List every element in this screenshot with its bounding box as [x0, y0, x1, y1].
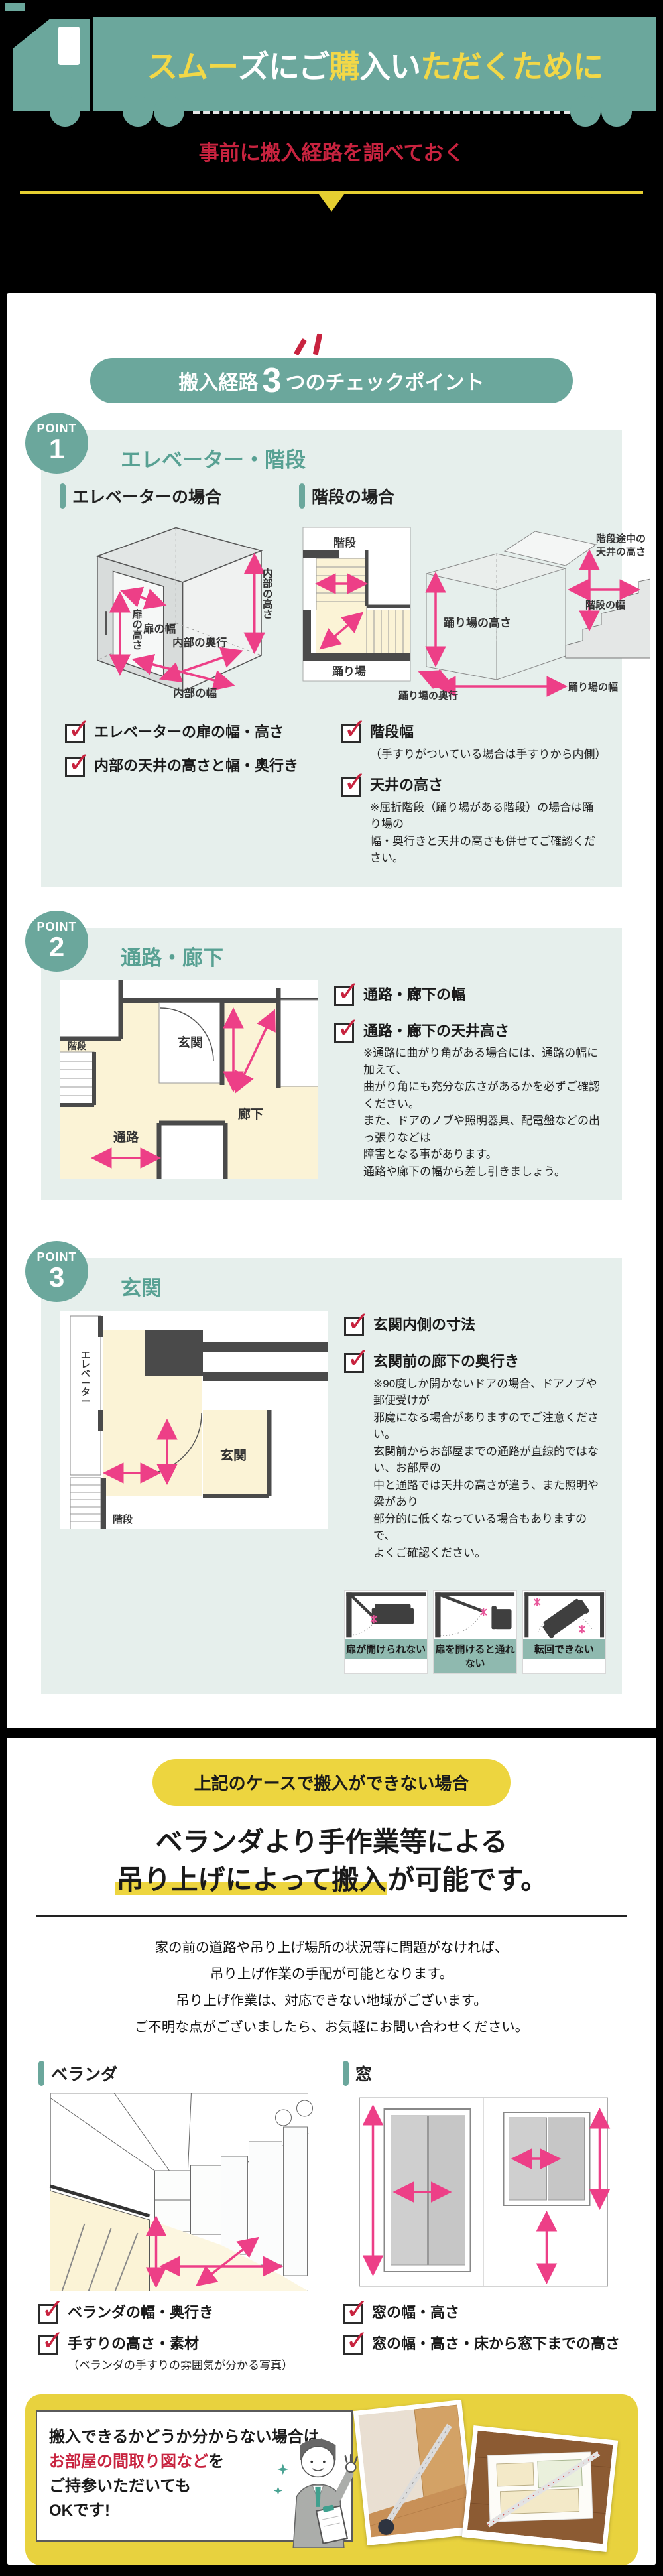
point1-badge: POINT 1: [25, 413, 88, 474]
point3-badge: POINT 3: [25, 1241, 88, 1302]
teal-bar-icon: [38, 2061, 44, 2086]
plan-genkan-label: 玄関: [220, 1447, 247, 1463]
landing-width-label: 踊り場の幅: [568, 681, 618, 693]
elevator-diagram: 扉の高さ 扉の幅 内部の高さ 内部の奥行 内部の幅: [60, 515, 278, 700]
point1-number: 1: [49, 434, 64, 464]
yellow-divider: [20, 191, 643, 194]
checkbox-icon: ✓: [38, 2335, 58, 2355]
accent-mark-icon: [294, 338, 307, 356]
truck-wheel: [123, 96, 153, 127]
photo-measuring-door: [353, 2400, 475, 2545]
problem-thumbnails: 扉が開けられない: [344, 1590, 606, 1674]
check-item: ✓ 天井の高さ ※屈折階段（踊り場がある階段）の場合は踊り場の 幅・奥行きと天井…: [341, 776, 601, 867]
checkbox-icon: ✓: [344, 1317, 364, 1336]
teal-bar-icon: [343, 2061, 349, 2086]
pill-number: 3: [263, 363, 282, 398]
landing-label: 踊り場: [332, 665, 366, 678]
thumb-door-blocked: 扉が開けられない: [344, 1590, 428, 1674]
veranda-column: ベランダ: [38, 2061, 320, 2374]
truck-body: スムーズにご購入いただくために: [93, 17, 656, 111]
door-open-blocked-illustration: [434, 1591, 516, 1639]
door-width-label: 扉の幅: [143, 623, 176, 635]
door-height-label: 扉の高さ: [132, 608, 142, 651]
check-item: ✓ 通路・廊下の天井高さ ※通路に曲がり角がある場合には、通路の幅に加えて、 曲…: [334, 1022, 606, 1181]
measuring-door-photo: [358, 2404, 470, 2537]
mid-ceiling-label-2: 天井の高さ: [596, 546, 646, 558]
hero-section: スムーズにご購入いただくために 事前に搬入経路を調べておく: [0, 0, 663, 293]
cannot-rotate-illustration: [523, 1591, 605, 1639]
point2-number: 2: [49, 933, 64, 962]
check-item: ✓ 階段幅 （手すりがついている場合は手すりから内側）: [341, 723, 601, 763]
point3-panel: 玄関 エレベーター: [41, 1258, 622, 1694]
truck-wheel: [570, 96, 601, 127]
page-title: スムーズにご購入いただくために: [93, 17, 656, 111]
window-heading: 窓: [343, 2061, 625, 2086]
truck-wheel: [601, 96, 632, 127]
point2-badge: POINT 2: [25, 911, 88, 972]
truck-illustration: スムーズにご購入いただくために: [13, 17, 656, 129]
page: スムーズにご購入いただくために 事前に搬入経路を調べておく 搬入経路3つのチェッ…: [0, 0, 663, 2576]
truck-wheel: [154, 96, 184, 127]
checkbox-icon: ✓: [65, 724, 85, 743]
thumb-cannot-rotate: 転回できない: [522, 1590, 606, 1674]
mid-ceiling-label-1: 階段途中の: [596, 533, 646, 545]
lifting-card: 上記のケースで搬入ができない場合 ベランダより手作業等による 吊り上げによって搬…: [7, 1738, 656, 2565]
photo-floorplan-measure: [462, 2425, 618, 2552]
truck-cab-window: [58, 27, 80, 65]
checkbox-icon: ✓: [334, 986, 354, 1006]
elevator-column: エレベーターの場合: [60, 483, 288, 704]
window-column: 窓: [343, 2061, 625, 2374]
point2-panel: 通路・廊下 玄関 廊下: [41, 928, 622, 1200]
cannot-deliver-badge: 上記のケースで搬入ができない場合: [152, 1759, 511, 1806]
point3-number: 3: [49, 1263, 64, 1292]
highlighted-text: 吊り上げによって搬入: [115, 1864, 388, 1895]
landing-depth-label: 踊り場の奥行: [398, 690, 458, 701]
checkbox-icon: ✓: [343, 2304, 363, 2324]
check-item: ✓ ベランダの幅・奥行き: [38, 2303, 320, 2324]
truck-dashed-line: [193, 111, 570, 114]
truck-exhaust: [5, 3, 25, 11]
point3-section: POINT 3 玄関 エレベーター: [41, 1258, 622, 1694]
stairs-column: 階段の場合 階段: [299, 483, 650, 704]
truck-wheel: [50, 96, 80, 127]
plan-kaidan-label: 階段: [113, 1513, 133, 1525]
point3-title: 玄関: [121, 1269, 606, 1301]
stairs-heading: 階段の場合: [299, 483, 650, 509]
pill-text-post: つのチェックポイント: [285, 366, 484, 395]
checkbox-icon: ✓: [344, 1353, 364, 1373]
stairs-label: 階段: [333, 536, 356, 549]
checkbox-icon: ✓: [65, 757, 85, 777]
inner-width-label: 内部の幅: [173, 687, 217, 700]
teal-bar-icon: [60, 483, 66, 509]
checkbox-icon: ✓: [341, 724, 361, 743]
hero-subtitle: 事前に搬入経路を調べておく: [0, 136, 663, 166]
plan-kaidan-label: 階段: [68, 1041, 86, 1051]
floorplan-photo: [467, 2430, 613, 2544]
point2-title: 通路・廊下: [121, 938, 606, 971]
check-item: ✓ 窓の幅・高さ: [343, 2303, 625, 2324]
landing-height-label: 踊り場の高さ: [444, 616, 511, 629]
entrance-floorplan: エレベーター 玄関: [60, 1311, 328, 1529]
inner-height-label: 内部の高さ: [263, 567, 272, 621]
point1-panel: エレベーター・階段 エレベーターの場合: [41, 430, 622, 887]
lifting-title: ベランダより手作業等による 吊り上げによって搬入が可能です。: [7, 1823, 656, 1900]
door-blocked-illustration: [345, 1591, 427, 1639]
speech-card: 搬入できるかどうか分からない場合は、 お部屋の間取り図などを ご持参いただいても…: [36, 2410, 353, 2542]
check-item: ✓ エレベーターの扉の幅・高さ: [65, 723, 310, 743]
checkbox-icon: ✓: [334, 1023, 354, 1043]
checkbox-icon: ✓: [38, 2304, 58, 2324]
check-item: ✓ 手すりの高さ・素材 （ベランダの手すりの雰囲気が分かる写真）: [38, 2335, 320, 2374]
check-item: ✓ 通路・廊下の幅: [334, 986, 606, 1006]
veranda-heading: ベランダ: [38, 2061, 320, 2086]
floorplan-ok-box: 搬入できるかどうか分からない場合は、 お部屋の間取り図などを ご持参いただいても…: [25, 2394, 638, 2565]
checkbox-icon: ✓: [341, 777, 361, 797]
lifting-paragraph: 家の前の道路や吊り上げ場所の状況等に問題がなければ、 吊り上げ作業の手配が可能と…: [7, 1935, 656, 2041]
inner-depth-label: 内部の奥行: [172, 637, 227, 649]
veranda-illustration: [38, 2093, 320, 2291]
pill-text-pre: 搬入経路: [179, 366, 259, 395]
stair-width-label: 階段の幅: [585, 599, 625, 611]
plan-elevator-label: エレベーター: [81, 1350, 90, 1407]
checkbox-icon: ✓: [343, 2335, 363, 2355]
checkpoints-card: 搬入経路3つのチェックポイント POINT 1 エレベーター・階段 エレベーター…: [7, 293, 656, 1728]
accent-mark-icon: [312, 334, 322, 355]
window-illustration: [343, 2093, 625, 2291]
staff-ok-illustration: [272, 2431, 362, 2548]
down-arrow-icon: [319, 194, 344, 212]
check-item: ✓ 玄関前の廊下の奥行き ※90度しか開かないドアの場合、ドアノブや郵便受けが …: [344, 1352, 606, 1561]
divider-line: [36, 1915, 627, 1917]
point1-title: エレベーター・階段: [121, 440, 606, 473]
plan-rouka-label: 廊下: [238, 1106, 263, 1122]
teal-bar-icon: [299, 483, 305, 509]
check-item: ✓ 窓の幅・高さ・床から窓下までの高さ: [343, 2335, 625, 2355]
corridor-floorplan: 玄関 廊下 階段: [60, 980, 318, 1179]
truck-cab: [13, 19, 90, 111]
red-emphasis-text: お部屋の間取り図など: [49, 2453, 208, 2471]
stairs-diagram: 階段: [299, 515, 650, 701]
point2-section: POINT 2 通路・廊下 玄関: [41, 928, 622, 1200]
check-item: ✓ 玄関内側の寸法: [344, 1316, 606, 1336]
plan-tsuro-label: 通路: [113, 1129, 139, 1145]
thumb-door-open-blocked: 扉を開けると通れない: [433, 1590, 516, 1674]
elevator-heading: エレベーターの場合: [60, 483, 288, 509]
checkpoint-pill: 搬入経路3つのチェックポイント: [90, 358, 573, 403]
point1-section: POINT 1 エレベーター・階段 エレベーターの場合: [41, 430, 622, 887]
check-item: ✓ 内部の天井の高さと幅・奥行き: [65, 757, 310, 777]
plan-genkan-label: 玄関: [178, 1035, 203, 1050]
